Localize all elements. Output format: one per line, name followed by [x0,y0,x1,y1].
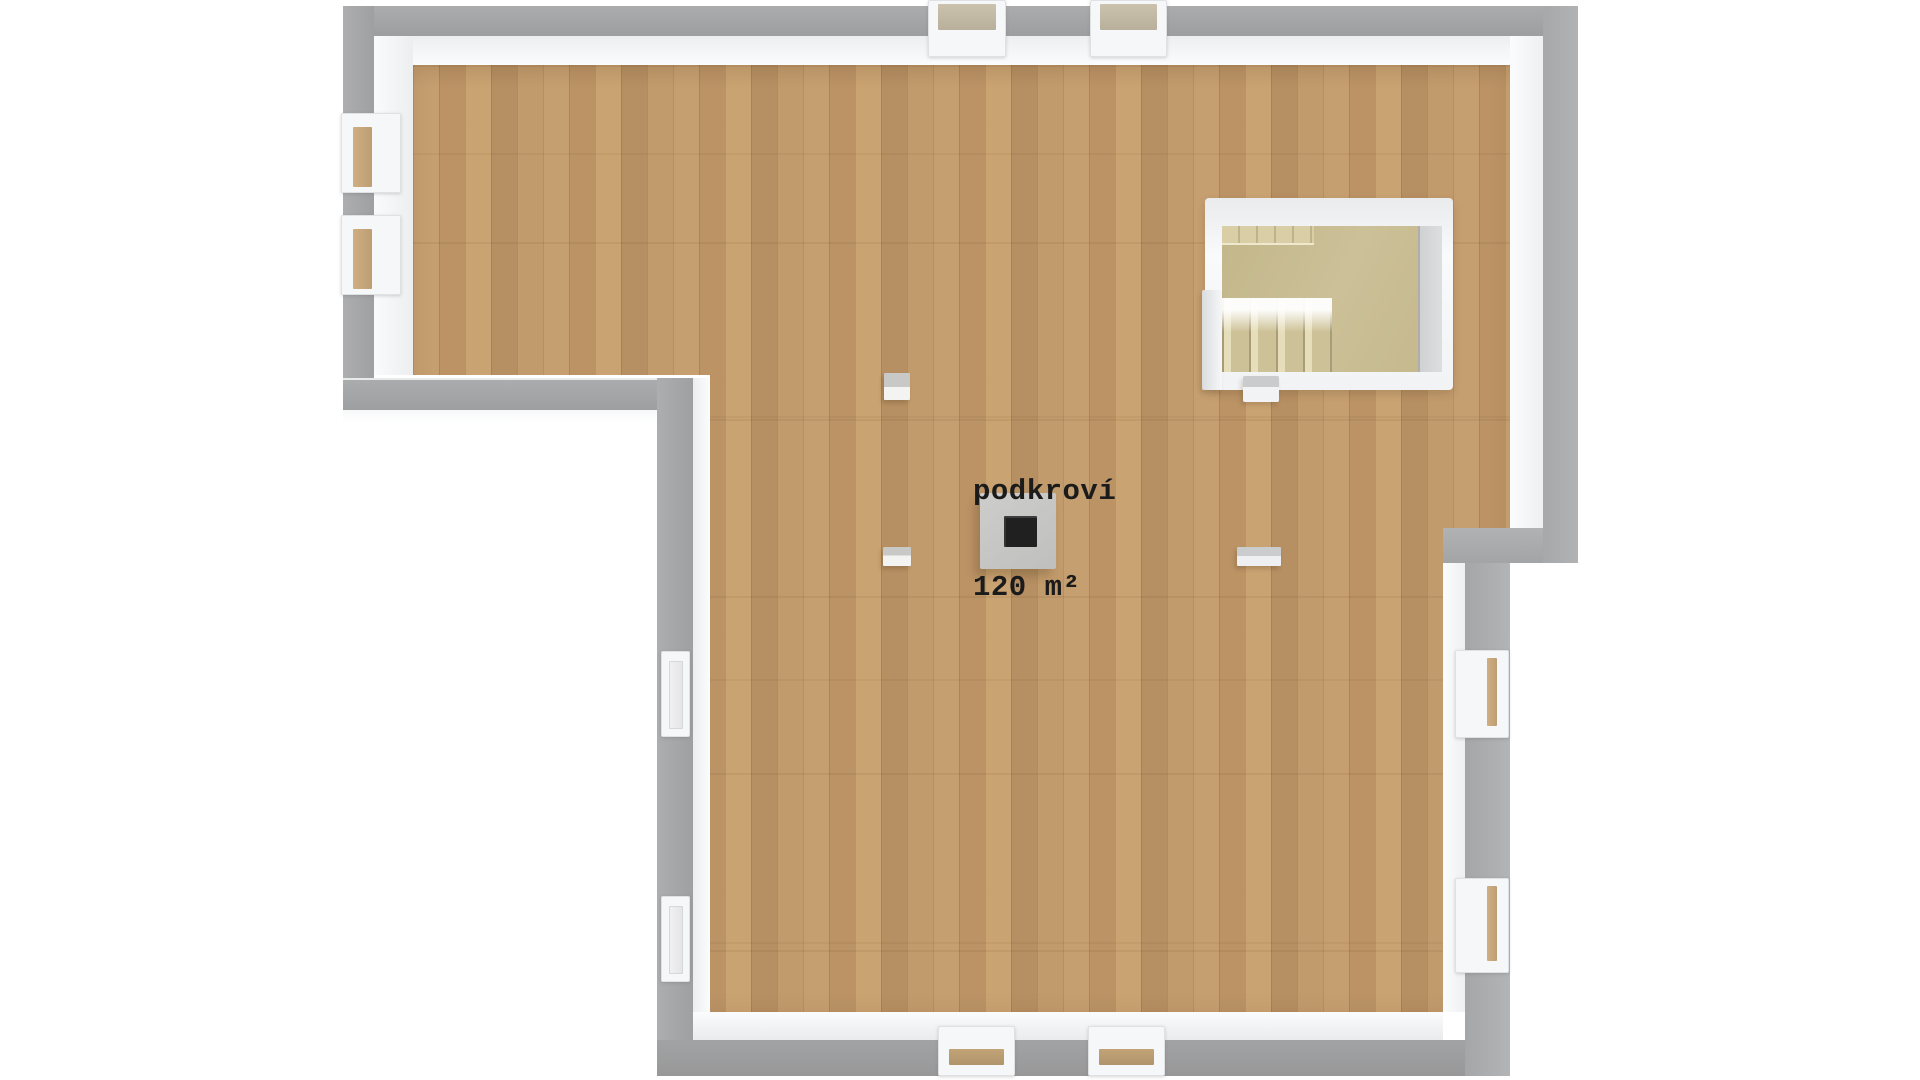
window-left-lower-1[interactable] [661,651,690,737]
room-label: podkroví 120 m² [973,412,1116,668]
wall-bottom-outer [657,1040,1510,1076]
wall-notch-outer [343,378,690,412]
support-post-2[interactable] [883,547,911,566]
window-right-lower-2[interactable] [1455,878,1509,973]
window-right-lower-1[interactable] [1455,650,1509,738]
window-pane [353,229,372,289]
wall-right-lower-outer [1465,528,1510,1076]
window-left-lower-2[interactable] [661,896,690,982]
room-area: 120 m² [973,572,1116,604]
wall-right-upper-inner-face [1510,36,1543,528]
window-pane [1100,4,1157,30]
stairwell-inner-wall [1418,226,1442,372]
stair-newel-post [1243,376,1279,402]
window-pane [949,1049,1004,1065]
stair-winder-steps [1222,226,1314,245]
window-pane [669,906,683,974]
wall-bottom-inner-face [693,1012,1443,1040]
window-bottom-2[interactable] [1088,1026,1165,1076]
room-name: podkroví [973,476,1116,508]
stair-flight-treads [1222,298,1332,372]
floorplan-canvas: podkroví 120 m² [0,0,1920,1080]
wall-left-lower-inner-face [693,378,710,1040]
support-post-3[interactable] [1237,547,1281,566]
window-bottom-1[interactable] [938,1026,1015,1076]
wall-left-upper-inner-face [374,36,413,375]
wall-right-upper-outer [1543,6,1578,563]
window-pane [1099,1049,1154,1065]
wall-left-upper-outer [343,6,374,410]
wall-notch-outer-face [343,410,657,422]
stair-railing-wall [1202,290,1222,390]
window-top-1[interactable] [928,0,1006,57]
window-pane [1487,886,1497,961]
window-left-upper-2[interactable] [341,215,401,295]
window-pane [669,661,683,729]
window-pane [938,4,996,30]
support-post-1[interactable] [884,373,910,400]
window-pane [353,127,372,187]
window-top-2[interactable] [1090,0,1167,57]
window-pane [1487,658,1497,726]
window-left-upper-1[interactable] [341,113,401,193]
